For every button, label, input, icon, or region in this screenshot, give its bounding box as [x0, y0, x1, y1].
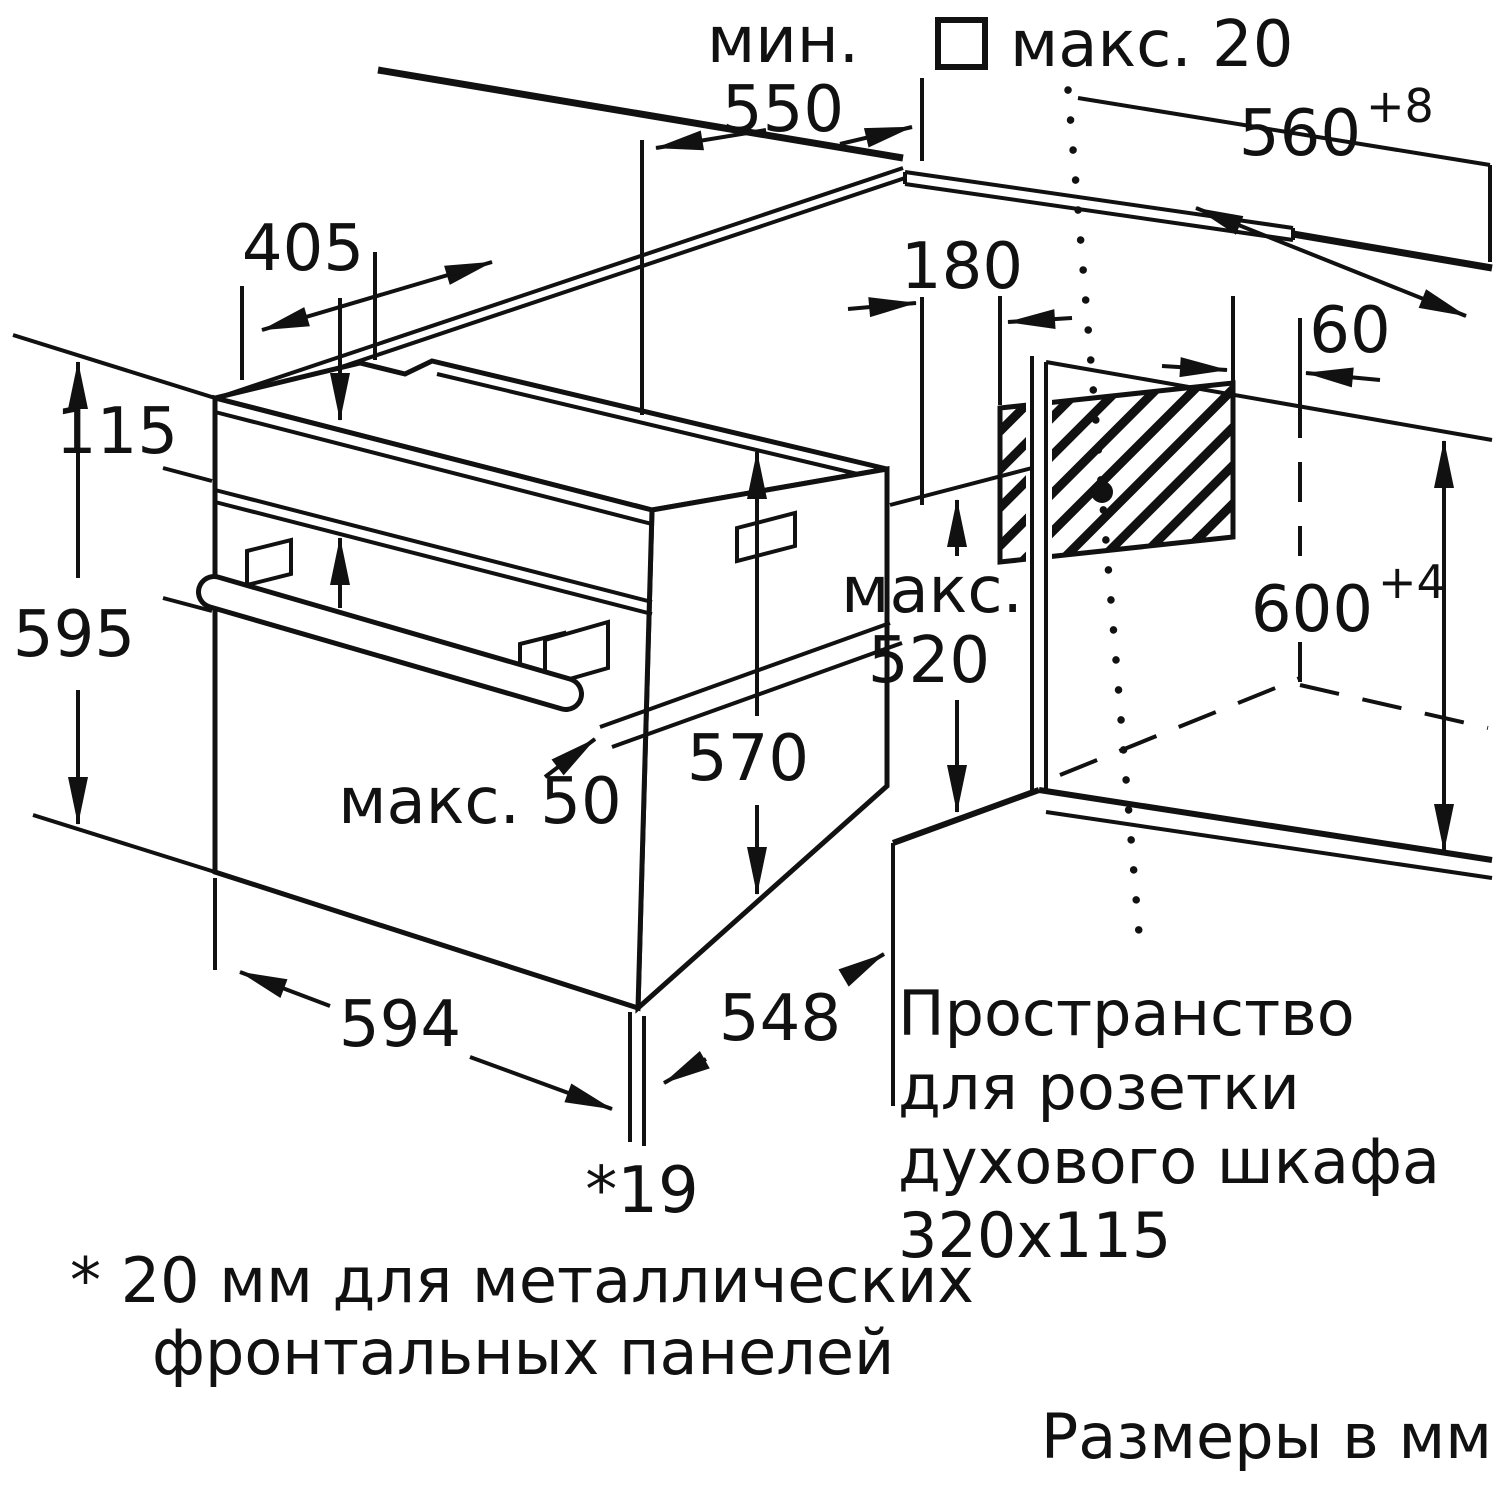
label-60: 60: [1309, 294, 1390, 368]
label-max-520: 520: [868, 624, 990, 698]
label-19: *19: [585, 1154, 698, 1228]
label-560: 560: [1239, 97, 1361, 171]
socket-note-line-3: духового шкафа: [898, 1125, 1440, 1198]
label-180: 180: [901, 230, 1023, 304]
footnote-block: * 20 мм для металлических фронтальных па…: [70, 1244, 974, 1389]
socket-note-line-1: Пространство: [898, 977, 1355, 1050]
label-max-word: макс.: [841, 554, 1023, 628]
label-max-50: макс. 50: [338, 765, 621, 839]
label-600-tolerance: +4: [1378, 555, 1446, 609]
label-min-550: 550: [722, 73, 844, 147]
label-570: 570: [687, 722, 809, 796]
label-min-word: мин.: [707, 4, 859, 78]
footnote-line-1: * 20 мм для металлических: [70, 1244, 974, 1317]
label-595: 595: [13, 598, 135, 672]
label-548: 548: [719, 982, 841, 1056]
footnote-line-2: фронтальных панелей: [152, 1316, 894, 1389]
label-115: 115: [56, 395, 178, 469]
label-594: 594: [339, 988, 461, 1062]
units-note: Размеры в мм: [1041, 1400, 1492, 1473]
socket-center-dot: [1091, 481, 1113, 503]
label-560-tolerance: +8: [1366, 79, 1434, 133]
installation-diagram: мин. 550 макс. 20 560 +8 405 115 595 180…: [0, 0, 1500, 1495]
socket-note-line-2: для розетки: [898, 1051, 1300, 1124]
label-600: 600: [1251, 573, 1373, 647]
label-max-20: макс. 20: [1010, 8, 1293, 82]
label-405: 405: [242, 212, 364, 286]
oven-installation-diagram-page: { "diagram": { "title_hint": "Built-in o…: [0, 0, 1500, 1495]
